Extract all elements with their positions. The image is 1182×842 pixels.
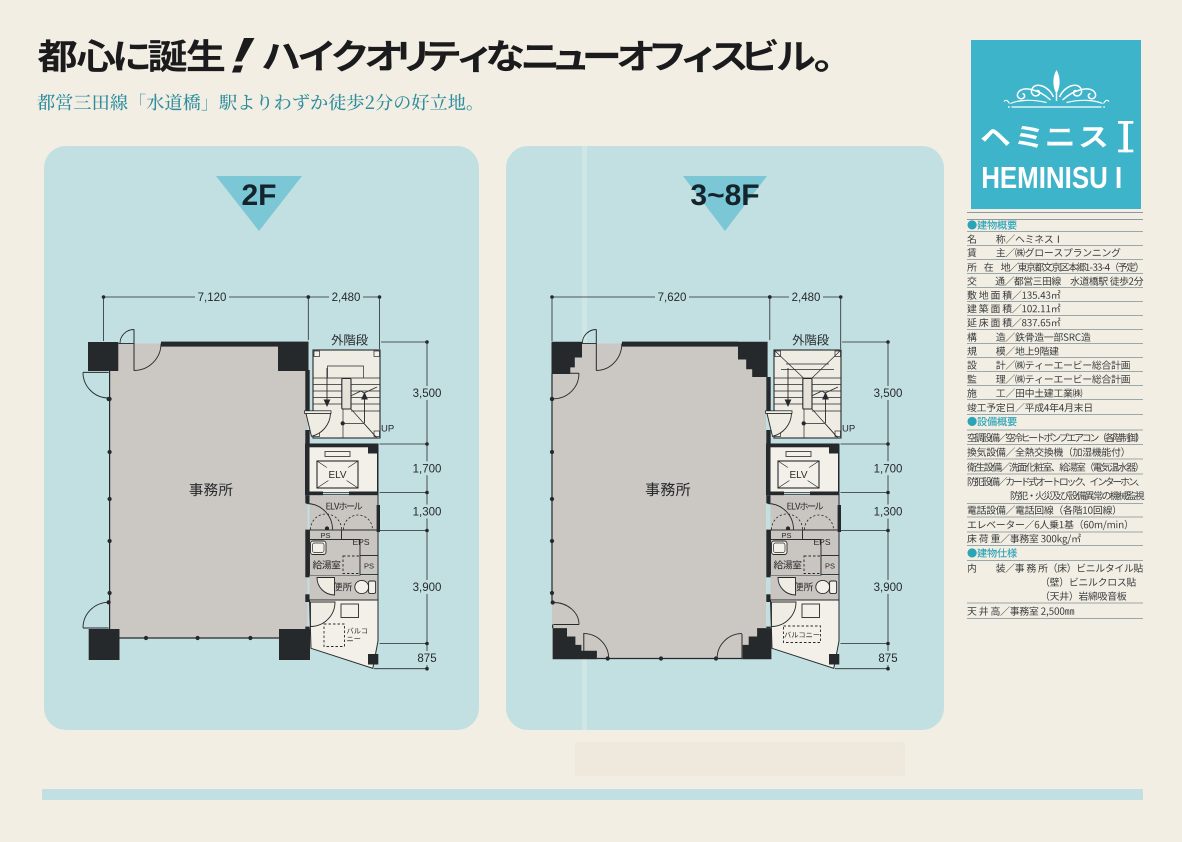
svg-text:875: 875 (878, 653, 897, 665)
svg-text:875: 875 (417, 653, 436, 665)
svg-text:3,500: 3,500 (413, 388, 442, 400)
svg-text:PS: PS (364, 562, 374, 571)
svg-text:1,700: 1,700 (413, 463, 442, 475)
svg-text:PS: PS (825, 562, 835, 571)
svg-text:3,500: 3,500 (874, 388, 903, 400)
svg-text:ELV: ELV (329, 470, 347, 481)
svg-text:2F: 2F (241, 179, 276, 212)
svg-text:1,300: 1,300 (874, 507, 903, 519)
svg-text:1,700: 1,700 (874, 463, 903, 475)
svg-text:1,300: 1,300 (413, 507, 442, 519)
svg-text:EPS: EPS (352, 537, 369, 547)
svg-text:3,900: 3,900 (413, 582, 442, 594)
svg-text:UP: UP (842, 424, 855, 435)
svg-text:ELV: ELV (790, 470, 808, 481)
svg-text:EPS: EPS (813, 537, 830, 547)
svg-text:PS: PS (781, 531, 791, 540)
svg-text:3,900: 3,900 (874, 582, 903, 594)
svg-text:PS: PS (320, 531, 330, 540)
svg-text:3~8F: 3~8F (690, 179, 759, 212)
svg-text:UP: UP (381, 424, 394, 435)
svg-text:2,480: 2,480 (332, 292, 361, 304)
svg-text:7,120: 7,120 (198, 292, 227, 304)
svg-text:HEMINISU I: HEMINISU I (981, 160, 1122, 195)
svg-text:2,480: 2,480 (792, 292, 821, 304)
svg-text:7,620: 7,620 (658, 292, 687, 304)
